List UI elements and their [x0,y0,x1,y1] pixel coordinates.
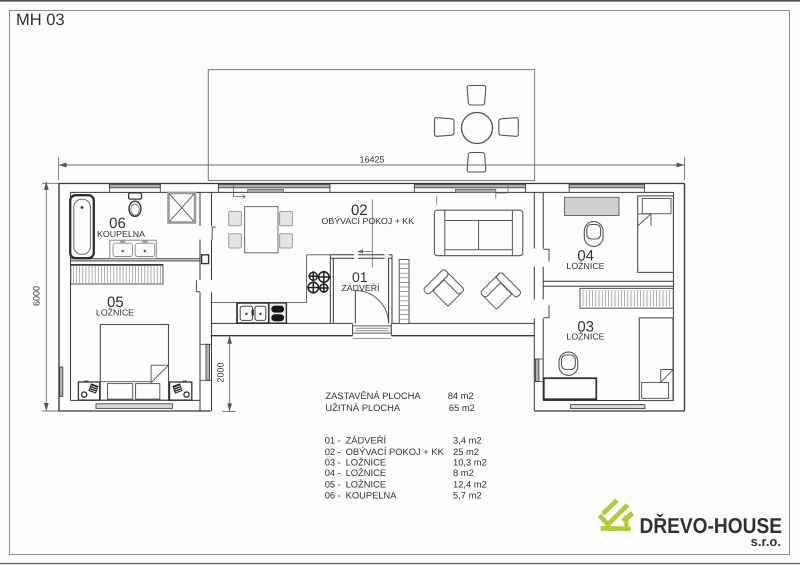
svg-text:02 -: 02 - [325,447,341,457]
svg-text:MH 03: MH 03 [16,11,65,29]
svg-text:LOŽNICE: LOŽNICE [566,332,604,342]
svg-text:LOŽNICE: LOŽNICE [566,261,604,271]
svg-text:LOŽNICE: LOŽNICE [96,308,134,318]
svg-text:LOŽNICE: LOŽNICE [346,467,387,478]
svg-text:3,4 m2: 3,4 m2 [453,436,482,446]
svg-text:12,4 m2: 12,4 m2 [453,479,487,489]
svg-text:04 -: 04 - [325,468,341,478]
svg-text:25 m2: 25 m2 [453,447,479,457]
svg-text:s.r.o.: s.r.o. [751,534,781,549]
svg-text:05 -: 05 - [325,479,341,489]
svg-text:65 m2: 65 m2 [449,403,475,413]
svg-text:03 -: 03 - [325,458,341,468]
svg-text:KOUPELNA: KOUPELNA [97,229,145,239]
svg-text:LOŽNICE: LOŽNICE [346,457,387,468]
svg-text:OBÝVACÍ POKOJ + KK: OBÝVACÍ POKOJ + KK [346,446,445,457]
svg-text:ZÁDVEŘÍ: ZÁDVEŘÍ [341,283,380,293]
svg-text:ZÁDVEŘÍ: ZÁDVEŘÍ [346,435,387,446]
svg-text:KOUPELNA: KOUPELNA [346,490,398,500]
svg-text:2000: 2000 [216,362,226,382]
svg-text:5,7 m2: 5,7 m2 [453,490,482,500]
svg-text:84 m2: 84 m2 [448,391,474,401]
svg-text:ZASTAVĚNÁ PLOCHA: ZASTAVĚNÁ PLOCHA [325,390,421,401]
svg-text:OBÝVACÍ POKOJ + KK: OBÝVACÍ POKOJ + KK [322,216,415,226]
svg-text:16425: 16425 [359,155,384,165]
svg-text:6000: 6000 [32,286,42,306]
svg-text:UŽITNÁ PLOCHA: UŽITNÁ PLOCHA [325,402,401,413]
svg-text:01 -: 01 - [325,436,341,446]
svg-text:10,3 m2: 10,3 m2 [453,458,487,468]
svg-text:LOŽNICE: LOŽNICE [346,478,387,489]
svg-text:8 m2: 8 m2 [453,468,474,478]
svg-text:06 -: 06 - [325,490,341,500]
